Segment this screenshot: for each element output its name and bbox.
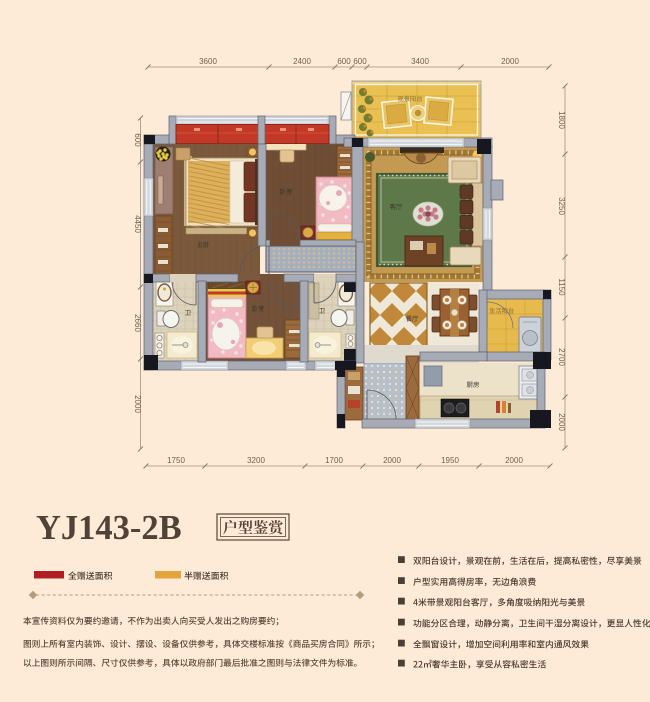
svg-text:YJ143-2B: YJ143-2B: [36, 509, 182, 547]
svg-text:2000: 2000: [133, 395, 142, 413]
svg-text:1700: 1700: [325, 456, 343, 465]
svg-text:2000: 2000: [501, 57, 519, 66]
svg-text:1950: 1950: [441, 456, 459, 465]
svg-text:600: 600: [353, 57, 367, 66]
svg-text:2000: 2000: [383, 456, 401, 465]
svg-text:4450: 4450: [133, 215, 142, 233]
svg-text:1750: 1750: [167, 456, 185, 465]
svg-text:1800: 1800: [557, 111, 566, 129]
svg-text:2700: 2700: [557, 348, 566, 366]
svg-text:3600: 3600: [199, 57, 217, 66]
svg-text:3200: 3200: [247, 456, 265, 465]
svg-text:2000: 2000: [557, 413, 566, 431]
svg-text:2400: 2400: [293, 57, 311, 66]
svg-text:600: 600: [133, 133, 142, 147]
svg-text:2000: 2000: [505, 456, 523, 465]
svg-text:600: 600: [337, 57, 351, 66]
svg-text:1150: 1150: [557, 278, 566, 296]
svg-text:3400: 3400: [411, 57, 429, 66]
svg-text:3250: 3250: [557, 197, 566, 215]
svg-text:2660: 2660: [133, 314, 142, 332]
